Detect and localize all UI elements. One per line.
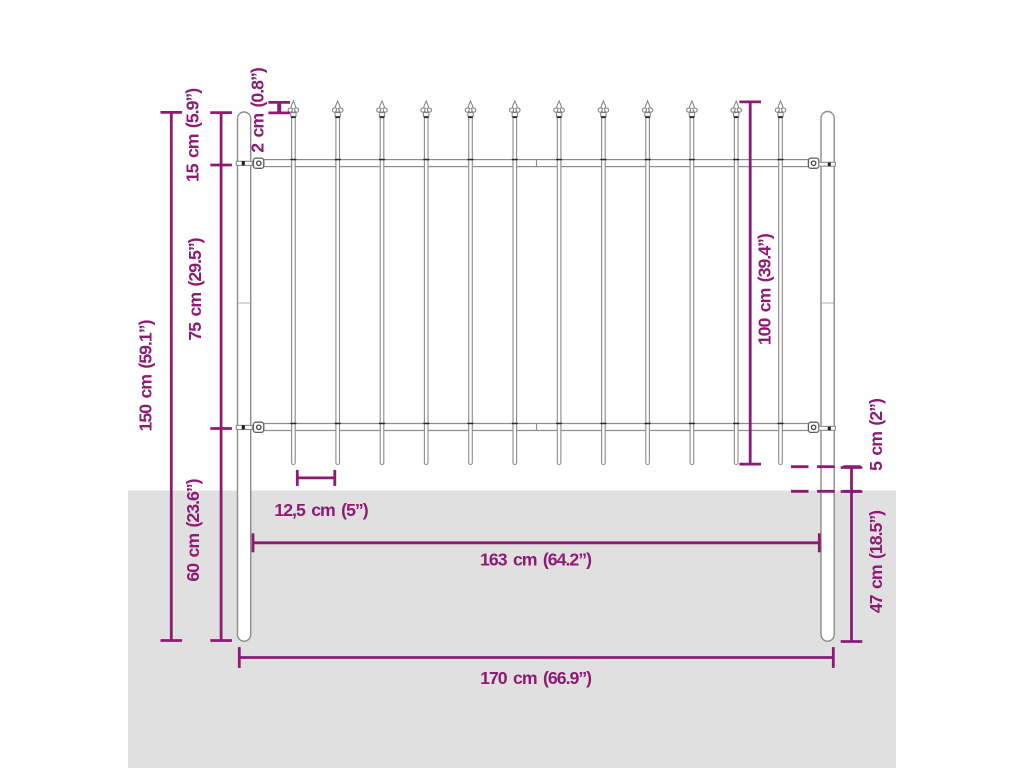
svg-text:2 cm (0.8”): 2 cm (0.8”): [248, 67, 268, 153]
svg-text:100 cm (39.4”): 100 cm (39.4”): [755, 233, 775, 345]
svg-text:170 cm (66.9”): 170 cm (66.9”): [480, 668, 592, 688]
svg-text:15 cm (5.9”): 15 cm (5.9”): [183, 88, 203, 182]
svg-text:75 cm (29.5”): 75 cm (29.5”): [185, 237, 205, 340]
svg-text:60 cm (23.6”): 60 cm (23.6”): [183, 478, 203, 581]
svg-text:163 cm (64.2”): 163 cm (64.2”): [480, 550, 592, 570]
svg-text:47 cm (18.5”): 47 cm (18.5”): [866, 510, 886, 613]
svg-text:150 cm (59.1”): 150 cm (59.1”): [136, 319, 156, 431]
svg-text:12,5 cm (5”): 12,5 cm (5”): [274, 500, 368, 520]
svg-text:5 cm (2”): 5 cm (2”): [866, 398, 886, 471]
